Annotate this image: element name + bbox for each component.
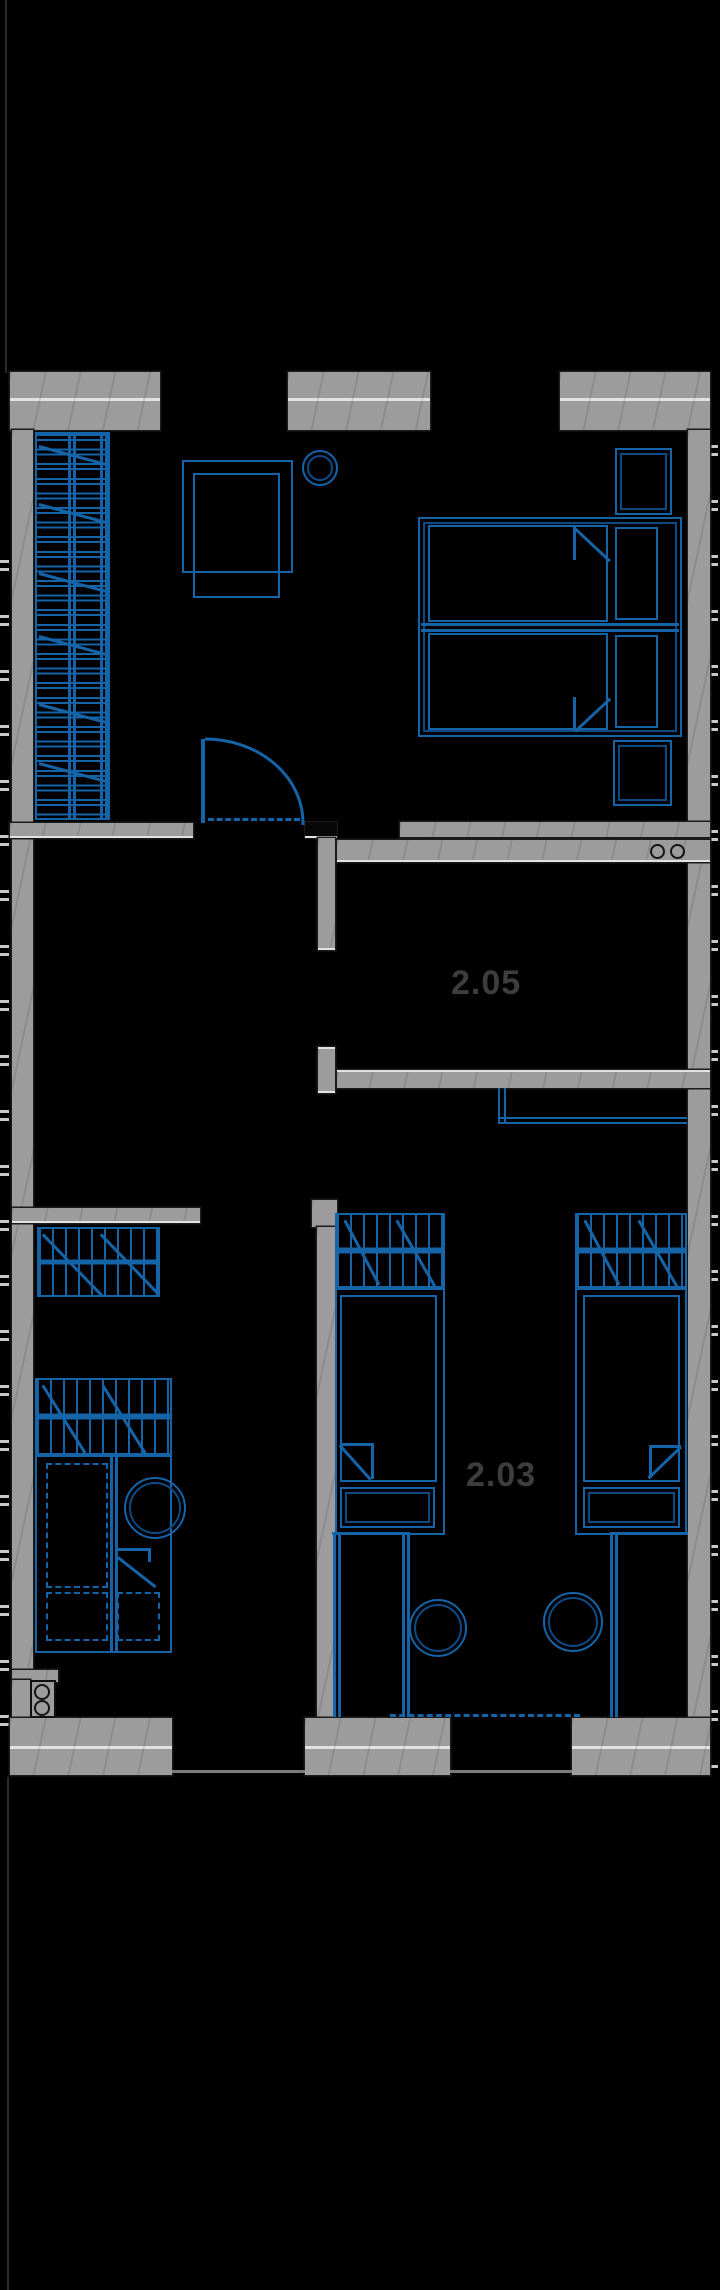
double-bed-pillow-1 — [615, 527, 658, 620]
room205-bottom-wall — [337, 1070, 710, 1088]
corner-desk-line — [118, 1548, 150, 1551]
double-bed-divider — [421, 629, 679, 632]
room-label-203: 2.03 — [466, 1458, 536, 1492]
drawer-dashed — [46, 1592, 108, 1641]
bed-divider — [110, 1455, 113, 1653]
wardrobe-diagonal — [102, 1385, 147, 1454]
bottom-wall-middle — [305, 1718, 450, 1775]
left-wall-lower — [12, 1680, 30, 1720]
boundary-line-top — [5, 0, 7, 373]
corridor-wall-block — [312, 1200, 337, 1227]
wall-circle-1 — [650, 844, 665, 859]
bottom-wall-right — [572, 1718, 710, 1775]
double-bed-divider — [421, 623, 679, 626]
stool — [302, 450, 338, 486]
fold-notch-line — [649, 1445, 681, 1448]
fold-notch-line — [371, 1443, 374, 1479]
desk-right-edge — [615, 1534, 618, 1717]
wall-block-dark — [305, 822, 337, 838]
wardrobe-bottom — [35, 1378, 172, 1455]
single-bed-right-headboard — [575, 1213, 687, 1288]
chair-circle — [124, 1477, 186, 1539]
nightstand-top — [615, 448, 672, 515]
sheet-fold-line — [573, 527, 576, 560]
stair-stringer — [73, 434, 76, 818]
right-wall — [688, 430, 710, 1775]
window-ticks-left — [0, 560, 9, 1770]
burner-1 — [34, 1684, 50, 1700]
headboard-diagonal — [344, 1220, 380, 1286]
desk-left-edge — [402, 1532, 405, 1717]
window-ticks-right — [709, 445, 718, 1773]
stair-rail — [100, 434, 103, 818]
stair-rail — [105, 434, 108, 818]
boundary-line-bottom — [7, 1777, 9, 2290]
windowsill-left — [172, 1770, 305, 1773]
bottom-wall-left — [10, 1718, 172, 1775]
handrail-horizontal — [498, 1117, 687, 1124]
top-wall-left — [10, 372, 160, 430]
single-bed-left-mattress — [340, 1295, 437, 1482]
corner-desk-line — [148, 1548, 151, 1562]
door-threshold — [208, 818, 300, 821]
windowsill-right — [450, 1770, 572, 1773]
headboard-diagonal — [584, 1220, 620, 1286]
double-bed-pillow-2 — [615, 635, 658, 728]
double-bed-mattress-2 — [428, 633, 608, 730]
desk-left-edge — [338, 1534, 341, 1717]
headboard-diagonal — [638, 1220, 678, 1287]
hall-wall-upper — [318, 838, 335, 950]
left-wall — [12, 430, 33, 1673]
windowsill-dashes — [390, 1714, 580, 1717]
floor-plan: 2.05 2.03 — [0, 0, 720, 2290]
wardrobe-diagonal — [42, 1385, 87, 1454]
stair-stringer — [68, 434, 71, 818]
wardrobe-hall — [37, 1227, 160, 1297]
wardrobe-diagonal — [100, 1233, 160, 1297]
sheet-fold-line — [573, 697, 576, 730]
double-bed-mattress-1 — [428, 525, 608, 622]
hall-wall-block — [318, 1047, 335, 1093]
drawer-dashed — [117, 1592, 160, 1641]
desk-right-edge — [610, 1532, 613, 1717]
mattress-dashed — [46, 1463, 108, 1588]
stool-left — [409, 1599, 467, 1657]
desk-right-top — [610, 1532, 688, 1535]
entry-door-swing — [199, 733, 309, 828]
wall-circle-2 — [670, 844, 685, 859]
desk-left-edge — [333, 1532, 336, 1717]
fold-notch-line — [340, 1443, 372, 1446]
room205-top-wall-band — [400, 822, 710, 837]
headboard-diagonal — [396, 1220, 436, 1287]
cooktop — [30, 1680, 56, 1718]
top-wall-middle — [288, 372, 430, 430]
nightstand-bottom — [613, 740, 672, 806]
stool-right — [543, 1592, 603, 1652]
corridor-bottom-wall — [12, 1208, 200, 1223]
desk-left-top — [332, 1532, 408, 1535]
wardrobe-diagonal — [42, 1233, 104, 1297]
single-bed-right-mattress — [583, 1295, 680, 1482]
single-bed-right-footer — [583, 1487, 680, 1528]
top-wall-right — [560, 372, 710, 430]
single-bed-left-footer — [340, 1487, 435, 1528]
room-label-205: 2.05 — [451, 966, 521, 1000]
burner-2 — [34, 1700, 50, 1716]
desk-chair — [193, 473, 280, 598]
bedroom-top-bottom-wall — [10, 823, 193, 838]
staircase — [35, 432, 110, 820]
single-bed-left-headboard — [335, 1213, 445, 1288]
